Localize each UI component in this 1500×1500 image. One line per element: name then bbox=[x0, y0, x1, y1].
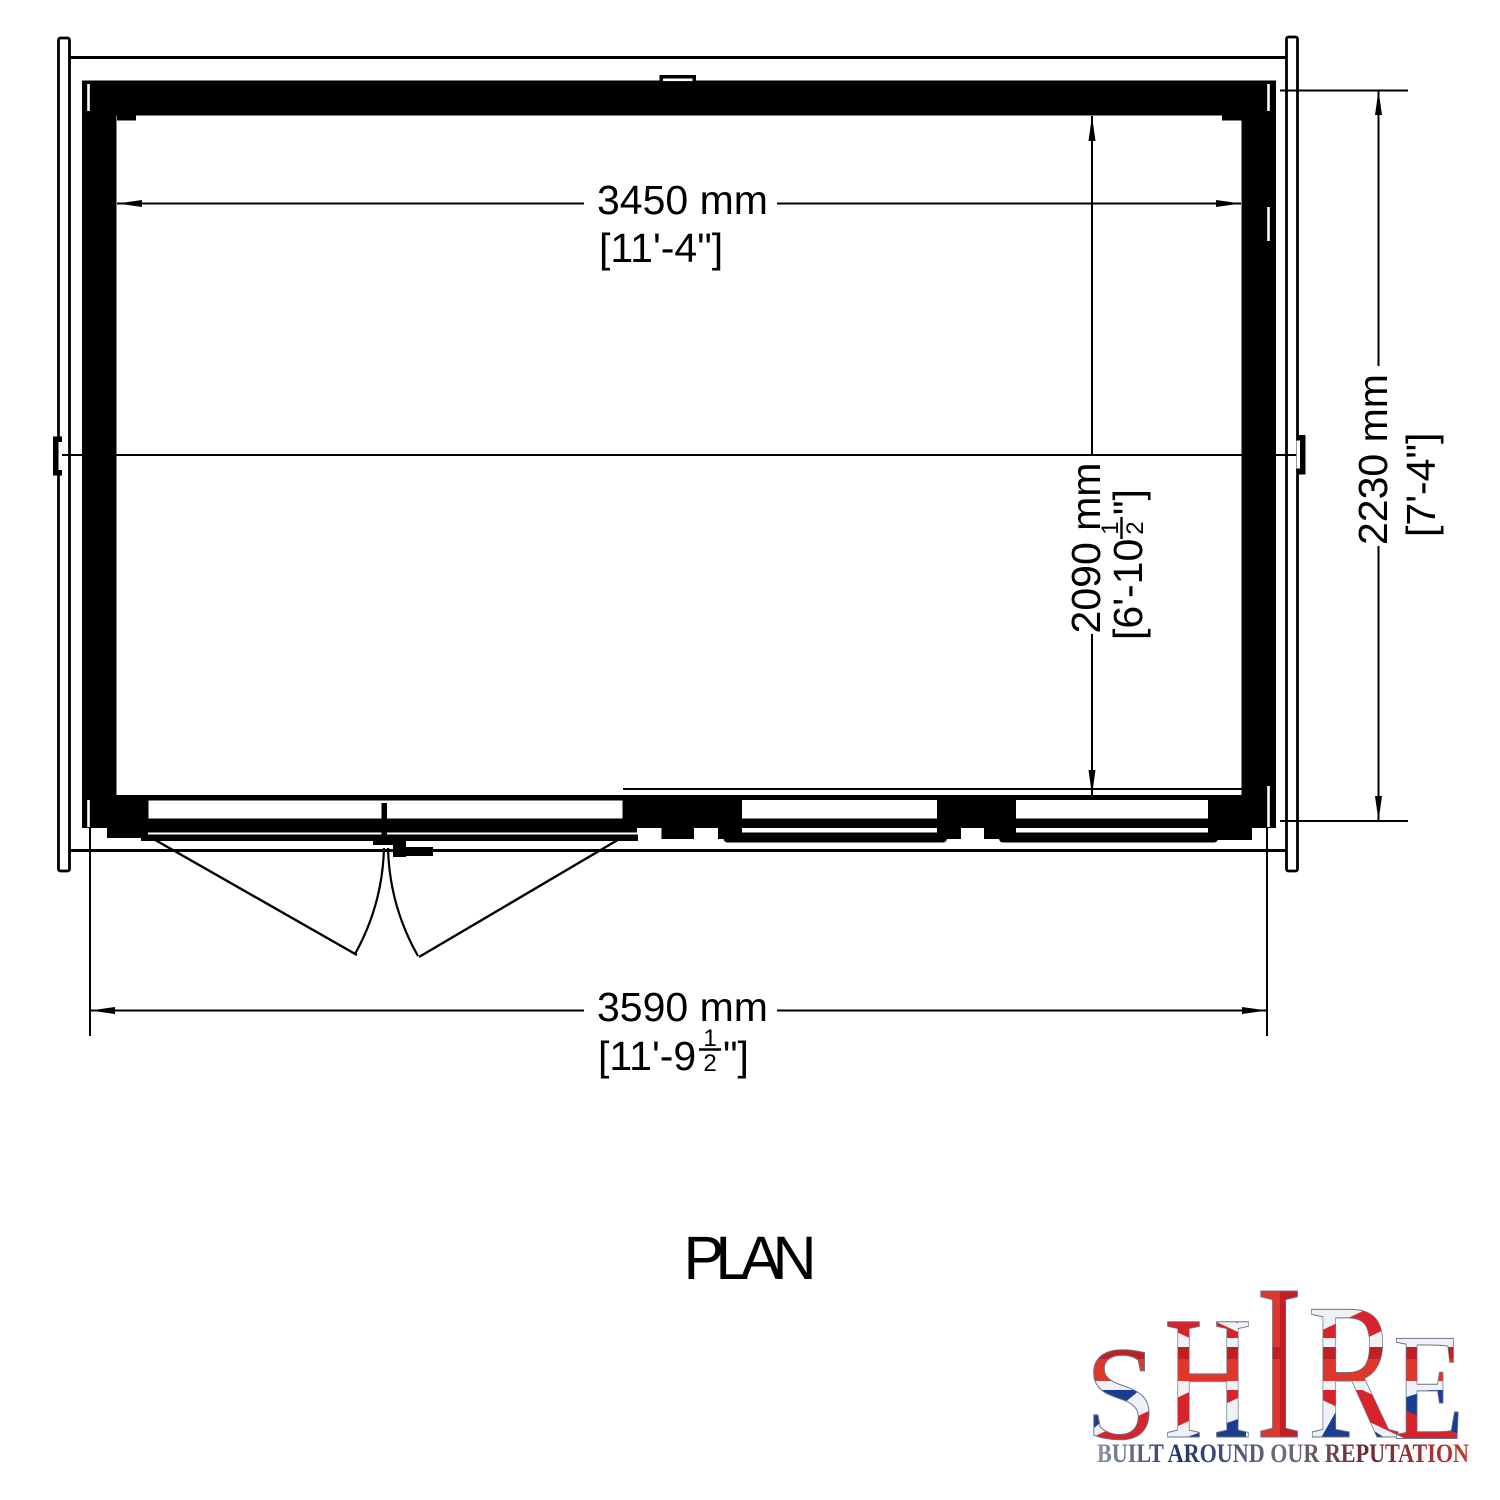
svg-text:2: 2 bbox=[1122, 521, 1149, 534]
svg-text:3450 mm: 3450 mm bbox=[597, 177, 768, 223]
svg-text:[7'-4"]: [7'-4"] bbox=[1398, 433, 1444, 537]
svg-text:1: 1 bbox=[1097, 521, 1124, 534]
svg-text:2230 mm: 2230 mm bbox=[1350, 374, 1396, 545]
svg-text:[6'-10: [6'-10 bbox=[1105, 539, 1151, 640]
svg-text:1: 1 bbox=[703, 1025, 716, 1052]
svg-text:2090 mm: 2090 mm bbox=[1063, 463, 1109, 634]
svg-text:[11'-9: [11'-9 bbox=[598, 1033, 696, 1079]
svg-text:BUILT AROUND OUR REPUTATION: BUILT AROUND OUR REPUTATION bbox=[1097, 1439, 1469, 1468]
svg-text:"]: "] bbox=[1105, 489, 1151, 515]
svg-text:3590 mm: 3590 mm bbox=[597, 984, 768, 1030]
svg-text:2: 2 bbox=[703, 1050, 716, 1077]
svg-text:"]: "] bbox=[723, 1033, 749, 1079]
svg-text:PLAN: PLAN bbox=[684, 1224, 817, 1292]
svg-text:[11'-4"]: [11'-4"] bbox=[599, 225, 723, 271]
